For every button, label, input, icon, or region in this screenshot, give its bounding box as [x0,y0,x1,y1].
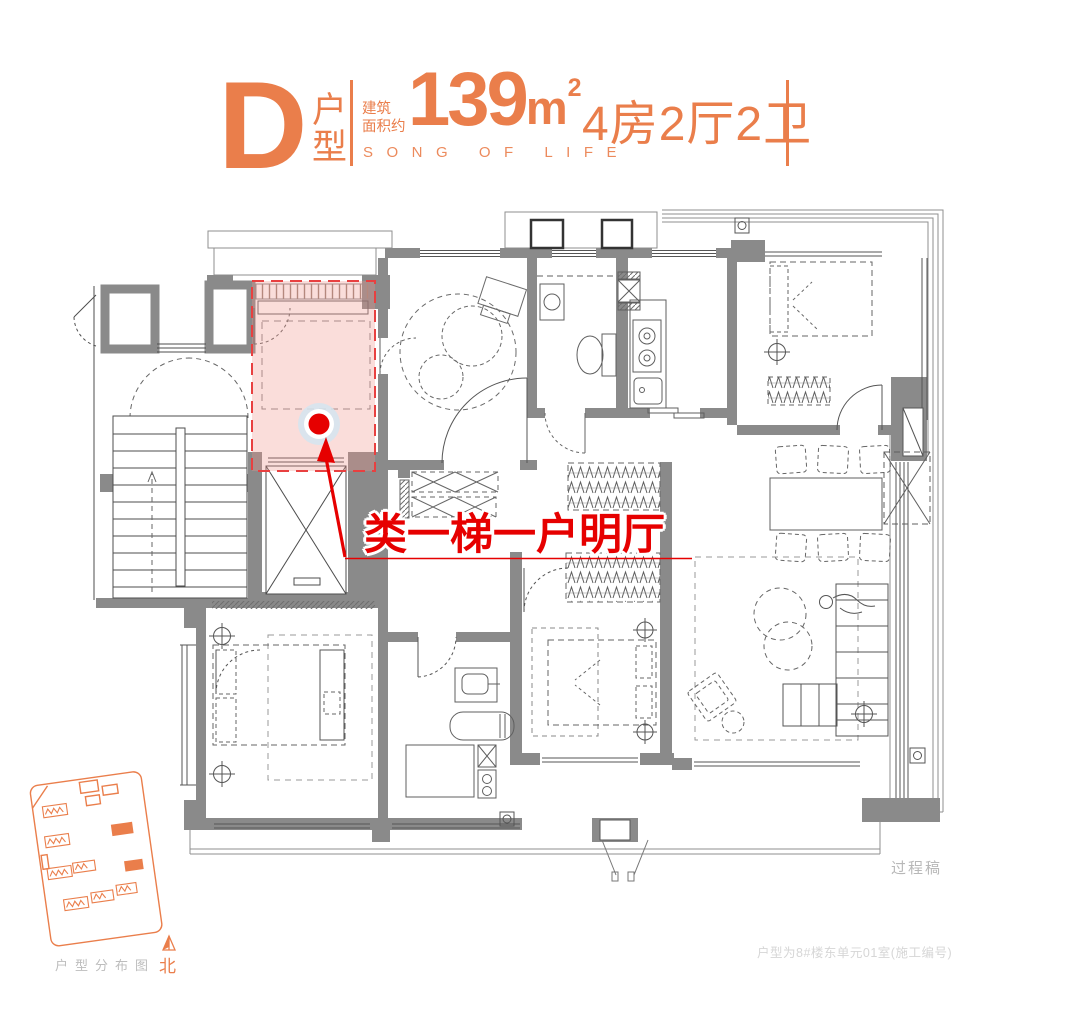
unit-type-label-bottom: 型 [312,129,347,166]
kitchen [618,272,704,418]
draft-watermark: 过程稿 [891,857,942,878]
area-exponent: 2 [568,76,582,101]
living-room [687,557,888,740]
bedroom-2 [764,262,882,430]
area-label-bottom: 面积约 [362,118,412,136]
north-arrow-icon [163,936,175,950]
area-value: 139 [408,62,526,138]
area-label: 建筑 面积约 [362,100,412,136]
master-bedroom [209,601,375,787]
location-marker [298,403,340,445]
area-figure: 139 m 2 [408,62,582,138]
site-map [29,771,162,947]
bathroom-1 [537,276,616,453]
highlight-annotation-text: 类一梯一户明厅 [364,500,665,562]
site-map-caption: 户型分布图 [55,955,155,974]
floorplan-page: D 户 型 建筑 面积约 139 m 2 4房2厅2卫 SONG OF LIFE… [0,0,1080,1033]
north-label: 北 [159,952,176,977]
study-room [400,277,527,463]
header-divider-right [786,80,789,166]
area-label-top: 建筑 [362,100,395,118]
unit-type-label-top: 户 [312,92,347,129]
slogan-text: SONG OF LIFE [363,144,630,161]
unit-type-label: 户 型 [312,92,347,166]
area-unit: m [526,84,568,131]
dining-area [770,445,930,562]
header-divider-left [350,80,353,166]
bathroom-2 [406,637,514,798]
unit-number-note: 户型为8#楼东单元01室(施工编号) [757,942,952,961]
unit-type-letter: D [218,64,306,188]
